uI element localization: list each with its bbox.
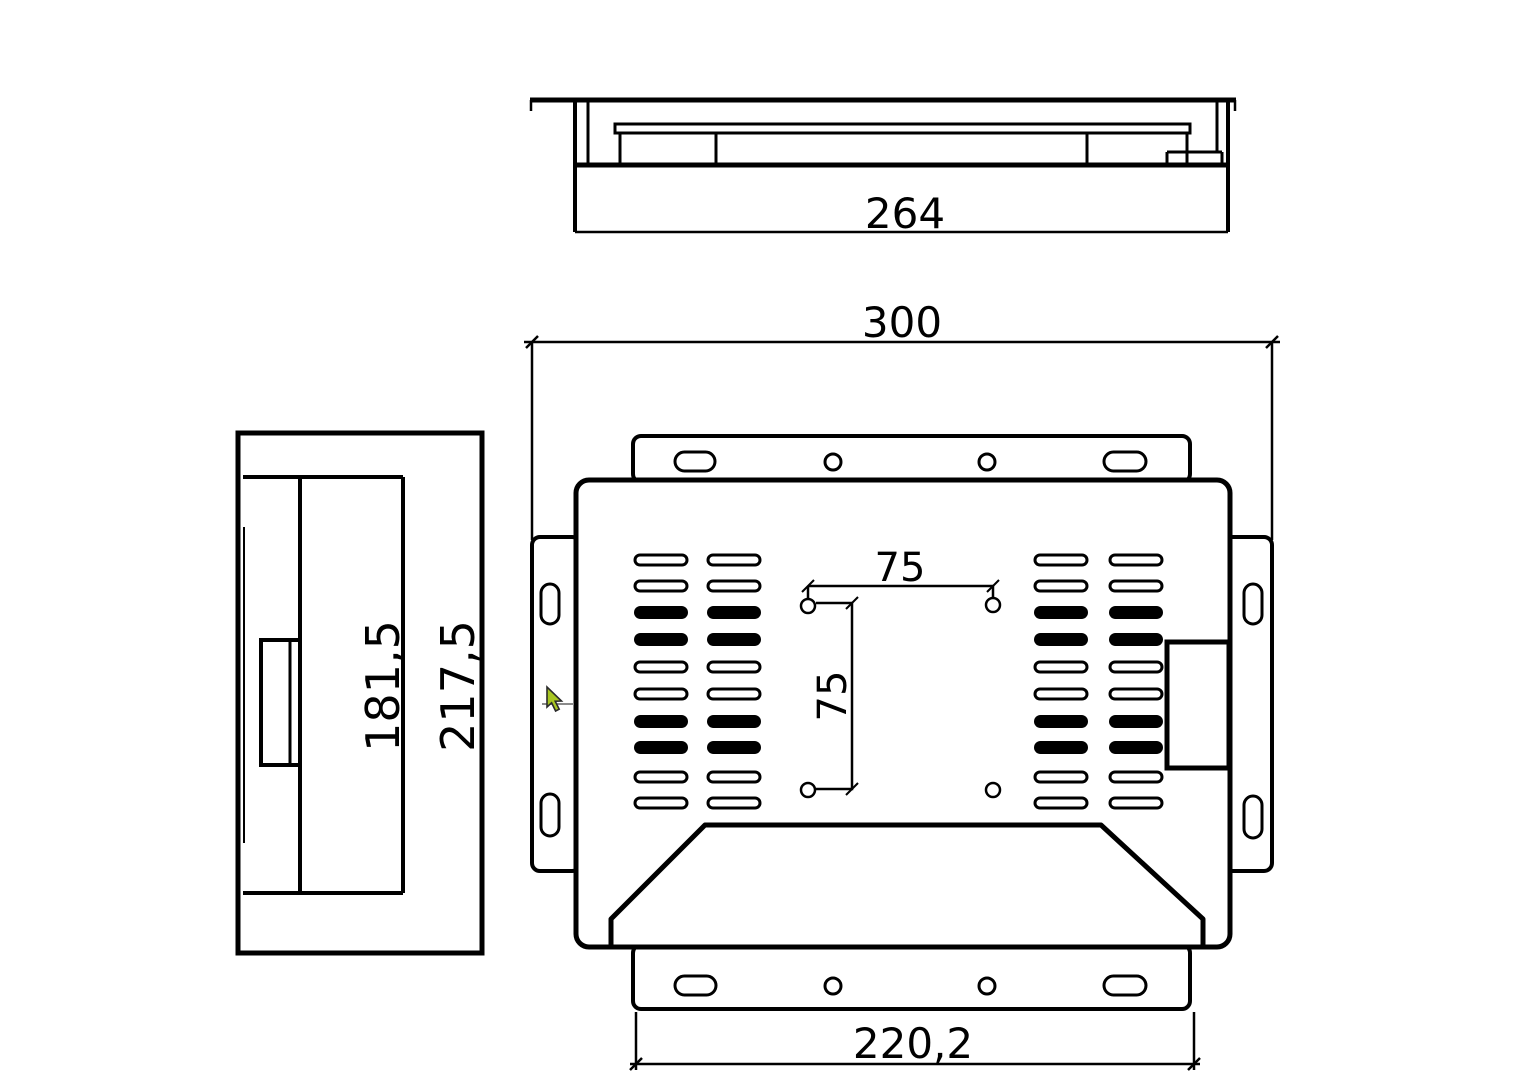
- vent-slot: [1034, 741, 1088, 754]
- vent-slot: [708, 662, 760, 672]
- vent-slot: [635, 798, 687, 808]
- vent-slot: [1109, 741, 1163, 754]
- vent-slot: [1035, 581, 1087, 591]
- rear-view: 300: [524, 298, 1280, 1070]
- cad-drawing-canvas: 264 181,5 217,5 300: [0, 0, 1523, 1076]
- vent-slot: [1110, 689, 1162, 699]
- side-view: 181,5 217,5: [238, 433, 485, 953]
- dim-text-217-5: 217,5: [431, 620, 485, 752]
- vent-slot: [708, 689, 760, 699]
- vent-slot: [708, 581, 760, 591]
- vent-slot: [1034, 715, 1088, 728]
- vent-slot: [635, 772, 687, 782]
- dim-text-75h: 75: [875, 545, 926, 591]
- vent-slot: [1110, 798, 1162, 808]
- dim-text-264: 264: [865, 189, 945, 238]
- vent-slot: [1035, 555, 1087, 565]
- bracket-slot: [675, 452, 715, 471]
- bracket-slot: [675, 976, 716, 995]
- bracket-hole: [825, 978, 841, 994]
- dim-text-181-5: 181,5: [356, 620, 410, 752]
- vent-slot: [635, 555, 687, 565]
- internal-block-left: [620, 133, 716, 165]
- vent-slot: [635, 662, 687, 672]
- vent-slot: [1109, 606, 1163, 619]
- internal-block-right: [1087, 133, 1187, 165]
- bracket-hole: [825, 454, 841, 470]
- vent-slot: [707, 606, 761, 619]
- vent-slot: [635, 581, 687, 591]
- vent-slot: [708, 772, 760, 782]
- wing-slot: [541, 794, 559, 836]
- vent-slot: [634, 633, 688, 646]
- vent-slot: [707, 633, 761, 646]
- dim-text-75v: 75: [810, 671, 856, 722]
- vent-slot: [634, 606, 688, 619]
- bracket-hole: [979, 978, 995, 994]
- dim-bracket-width: 220,2: [630, 1012, 1200, 1070]
- vent-slot: [634, 741, 688, 754]
- wing-slot: [1244, 796, 1262, 838]
- mount-bracket-bottom: [633, 945, 1190, 1009]
- vent-slot: [1035, 798, 1087, 808]
- bracket-hole: [979, 454, 995, 470]
- top-view: 264: [530, 100, 1236, 238]
- vent-slot: [1035, 772, 1087, 782]
- side-tab: [1167, 642, 1229, 768]
- vent-slot: [634, 715, 688, 728]
- vent-slot: [707, 715, 761, 728]
- vent-slot: [707, 741, 761, 754]
- vent-slot: [1035, 689, 1087, 699]
- bracket-slot: [1104, 976, 1146, 995]
- vent-slot: [1110, 662, 1162, 672]
- bracket-slot: [1104, 452, 1146, 471]
- vent-slot: [1035, 662, 1087, 672]
- wing-slot: [1244, 584, 1262, 624]
- vent-slot: [1110, 555, 1162, 565]
- vent-slot: [1109, 715, 1163, 728]
- dim-text-220-2: 220,2: [853, 1019, 973, 1068]
- vent-slot: [1110, 772, 1162, 782]
- vent-slot: [635, 689, 687, 699]
- dim-text-300: 300: [862, 298, 942, 347]
- vent-slot: [708, 798, 760, 808]
- vent-slot: [1110, 581, 1162, 591]
- vent-slot: [1034, 633, 1088, 646]
- side-connector-block: [261, 640, 300, 765]
- wing-slot: [541, 584, 559, 624]
- vent-slot: [708, 555, 760, 565]
- vent-slot: [1109, 633, 1163, 646]
- vent-slot: [1034, 606, 1088, 619]
